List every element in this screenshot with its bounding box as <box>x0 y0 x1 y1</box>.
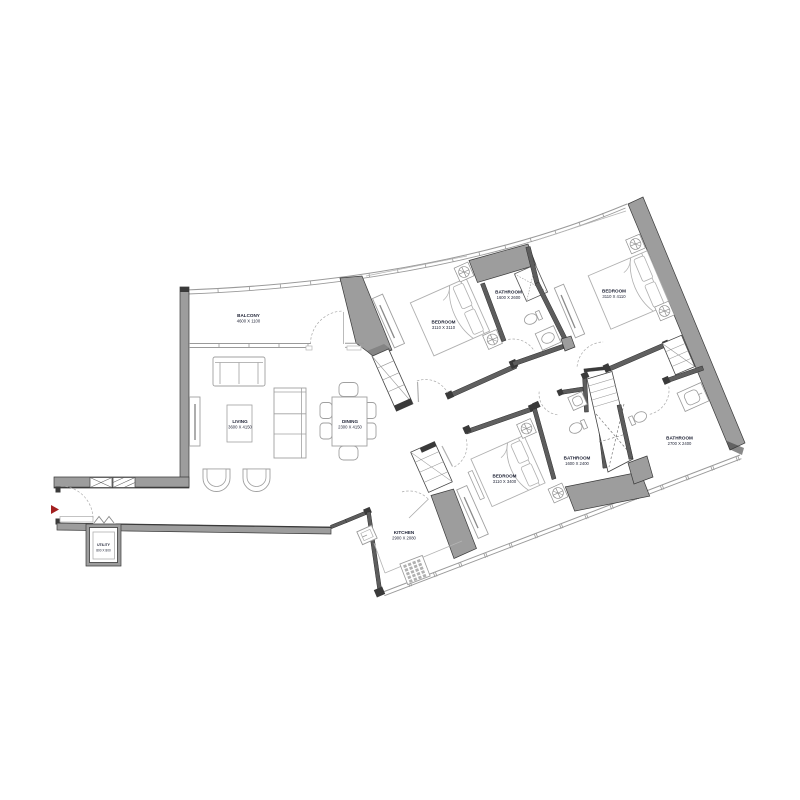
svg-text:LIVING: LIVING <box>232 419 248 424</box>
svg-text:DINING: DINING <box>342 419 359 424</box>
svg-text:2700 X 2400: 2700 X 2400 <box>668 441 692 446</box>
svg-text:3110 X 4110: 3110 X 4110 <box>602 294 626 299</box>
svg-text:BALCONY: BALCONY <box>237 313 260 318</box>
svg-text:UTILITY: UTILITY <box>97 543 111 547</box>
svg-text:3110 X 3110: 3110 X 3110 <box>432 325 456 330</box>
svg-text:BATHROOM: BATHROOM <box>564 456 591 461</box>
svg-text:4600 X 1100: 4600 X 1100 <box>237 319 261 324</box>
svg-text:1600 X 2600: 1600 X 2600 <box>497 295 521 300</box>
svg-text:BEDROOM: BEDROOM <box>493 474 517 479</box>
svg-text:3110 X 3400: 3110 X 3400 <box>493 479 517 484</box>
svg-text:BEDROOM: BEDROOM <box>432 320 456 325</box>
svg-text:800 X 800: 800 X 800 <box>96 549 111 553</box>
svg-text:1600 X 2400: 1600 X 2400 <box>565 461 589 466</box>
svg-text:2900 X 2080: 2900 X 2080 <box>392 536 416 541</box>
svg-text:KITCHEN: KITCHEN <box>394 530 415 535</box>
svg-text:BATHROOM: BATHROOM <box>666 436 693 441</box>
svg-text:BEDROOM: BEDROOM <box>602 289 626 294</box>
svg-text:2300 X 4150: 2300 X 4150 <box>338 425 362 430</box>
svg-text:3600 X 4150: 3600 X 4150 <box>228 425 252 430</box>
svg-text:BATHROOM: BATHROOM <box>495 290 522 295</box>
